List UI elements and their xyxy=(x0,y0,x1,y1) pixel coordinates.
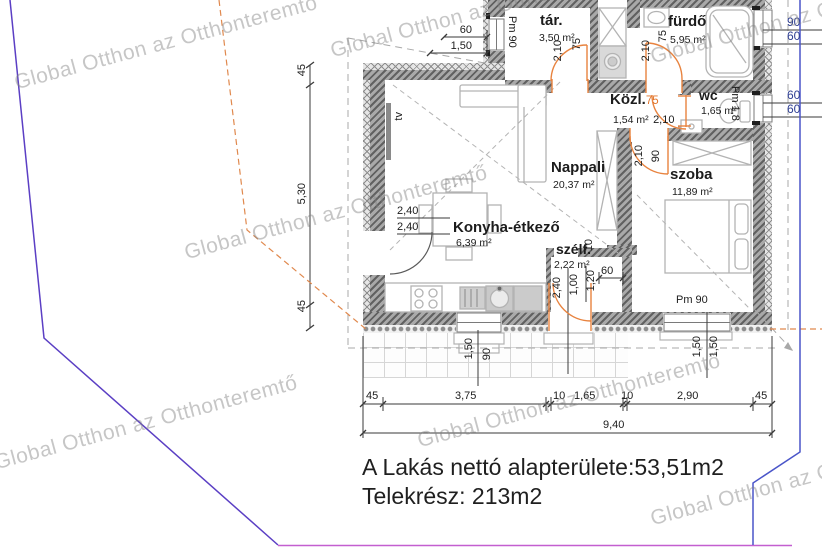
bed xyxy=(665,200,751,273)
wall-szoba-top xyxy=(617,128,753,141)
watermark: Global Otthon az Otthonteremtő xyxy=(12,0,320,95)
room-label-nappali: Nappali xyxy=(551,160,605,177)
wall-szelf-top-a xyxy=(546,248,554,257)
dim-right-wc-a: 60 xyxy=(787,89,800,102)
dim-kitchen-window-w: 1,50 xyxy=(463,338,475,359)
summary-plot: Telekrész: 213m2 xyxy=(362,484,542,509)
wall-tar-right xyxy=(590,0,598,80)
door-height-kozl: 2,10 xyxy=(653,114,674,126)
room-label-wc: wc xyxy=(699,88,718,103)
room-area-konyha: 6,39 m² xyxy=(456,238,492,250)
wall-top-step xyxy=(363,70,505,80)
dim-szelf-240: 2,40 xyxy=(551,277,563,298)
insulation-bottom-dots xyxy=(363,325,772,333)
cabinet xyxy=(597,131,617,230)
dim-wc-parapet: Pm 1,8 xyxy=(729,86,741,121)
room-label-konyha: Konyha-étkező xyxy=(453,220,560,237)
stove xyxy=(411,286,442,311)
kitchen-counter xyxy=(385,283,546,312)
dim-kitchen-window-parapet: 90 xyxy=(481,348,493,360)
dim-left-b: 5,30 xyxy=(296,183,308,204)
washing-machine xyxy=(599,8,626,78)
room-area-nappali: 20,37 m² xyxy=(553,180,594,192)
dim-top-window-parapet: Pm 90 xyxy=(506,16,518,48)
room-label-szoba: szoba xyxy=(670,167,713,184)
dim-door-szoba-w: 90 xyxy=(650,150,662,162)
eaves-arrowhead xyxy=(784,342,793,351)
wall-bottom-exterior xyxy=(363,312,772,325)
dim-bottom-b: 3,75 xyxy=(455,390,476,402)
watermark: Global Otthon az Otthonteremtő xyxy=(0,371,300,475)
dim-door-szoba-h: 2,10 xyxy=(633,145,645,166)
wall-nappali-szoba xyxy=(617,128,632,251)
room-area-kozl: 1,54 m² xyxy=(613,114,649,126)
dim-door-tar-h: 2,10 xyxy=(552,40,564,61)
terrace-door-swing xyxy=(390,232,432,274)
dim-szelf-120: 1,20 xyxy=(585,270,597,291)
watermark: Global Otthon az Otthonteremtő xyxy=(182,161,490,265)
room-label-kozl-row: Közl.75 xyxy=(610,91,659,109)
dim-szelf-100: 1,00 xyxy=(568,274,580,295)
dim-right-wc-b: 60 xyxy=(787,103,800,116)
room-label-kozl: Közl. xyxy=(610,91,646,108)
dim-szelf-60: 60 xyxy=(601,265,613,277)
door-width-kozl: 75 xyxy=(646,95,659,107)
wall-right-exterior xyxy=(753,0,765,333)
washbasin xyxy=(644,8,669,27)
insulation-right xyxy=(765,0,772,333)
sink xyxy=(486,286,513,311)
tv-set xyxy=(386,103,391,160)
insulation-top-step xyxy=(363,63,505,70)
dim-bottom-a: 45 xyxy=(366,390,378,402)
dim-konyha-2: 2,40 xyxy=(397,221,418,233)
wall-szelf-right xyxy=(622,255,632,313)
dim-szoba-window-parapet: Pm 90 xyxy=(676,294,708,306)
summary-net-area: A Lakás nettó alapterülete:53,51m2 xyxy=(362,455,724,480)
wardrobe xyxy=(673,141,751,165)
dim-bottom-f: 2,90 xyxy=(677,390,698,402)
dim-top-window-len: 1,50 xyxy=(432,40,472,52)
dim-door-tar-w: 75 xyxy=(571,38,583,50)
dim-szelf-10: 10 xyxy=(583,239,595,251)
dim-bottom-g: 45 xyxy=(755,390,767,402)
room-label-furdo: fürdő xyxy=(668,14,706,31)
dim-bottom-total: 9,40 xyxy=(603,419,624,431)
terrace-paving xyxy=(363,333,628,378)
tv-label: tv xyxy=(393,112,405,121)
room-area-kozl-row: 1,54 m² 2,10 xyxy=(613,110,674,128)
floor-plan: tár. 3,50 m² fürdő 5,95 m² Közl.75 1,54 … xyxy=(0,0,822,552)
fridge xyxy=(514,286,542,311)
dim-left-a: 45 xyxy=(296,64,308,76)
room-label-tar: tár. xyxy=(540,13,563,30)
dim-left-c: 45 xyxy=(296,300,308,312)
wall-niche-right xyxy=(627,0,640,28)
drainer xyxy=(460,287,485,309)
room-area-szoba: 11,89 m² xyxy=(672,187,713,199)
